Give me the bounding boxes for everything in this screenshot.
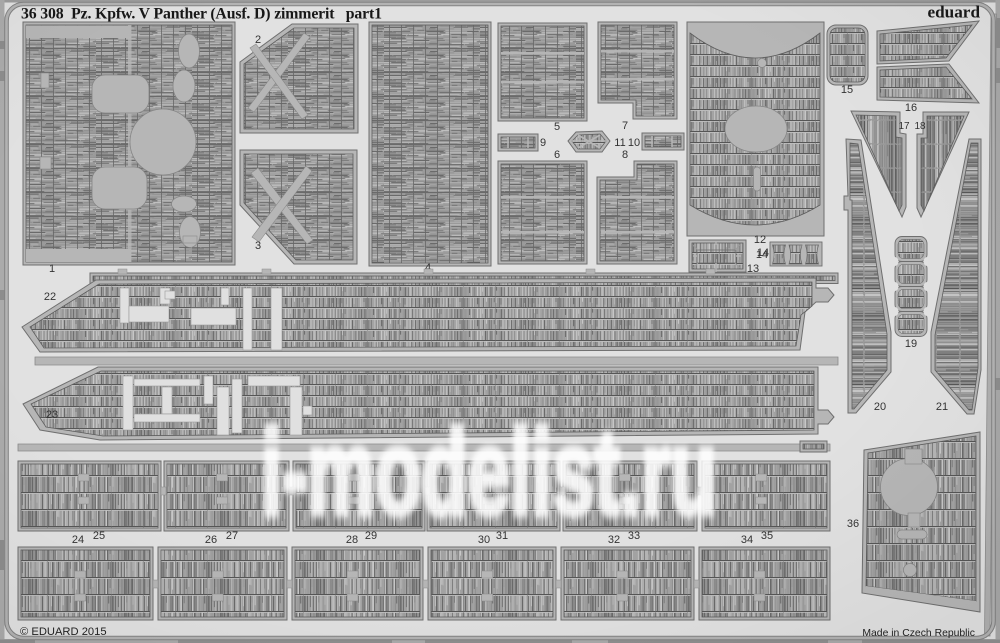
svg-text:i-modelist.ru: i-modelist.ru <box>261 405 717 541</box>
